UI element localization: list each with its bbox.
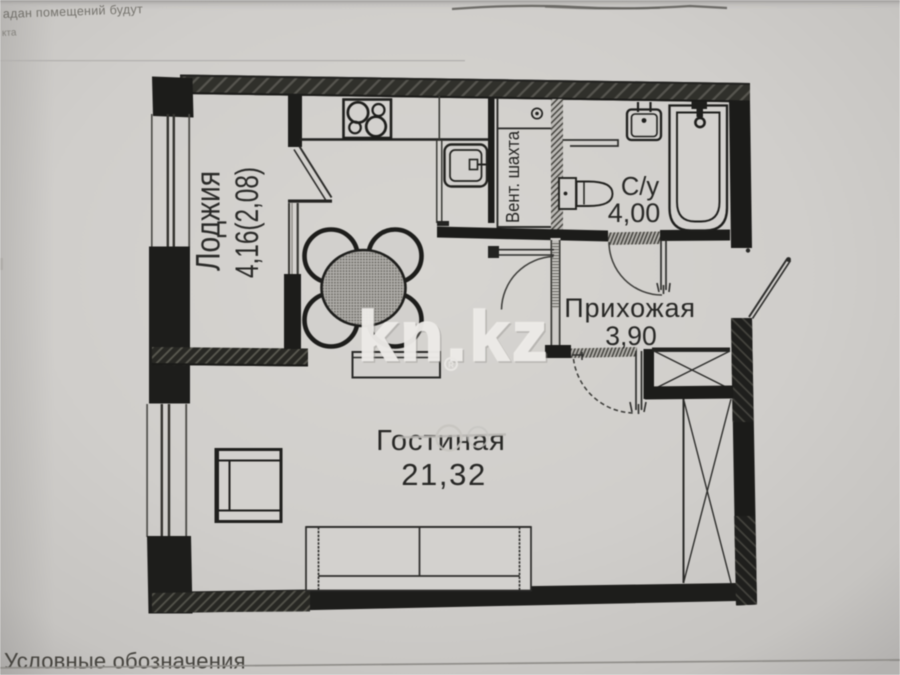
svg-text:кта: кта	[2, 27, 17, 39]
svg-text:С/у: С/у	[621, 173, 660, 201]
svg-text:Условные обозначения: Условные обозначения	[4, 649, 246, 674]
svg-text:Вент. шахта: Вент. шахта	[502, 130, 523, 223]
svg-text:21,32: 21,32	[401, 457, 487, 492]
svg-text:Лоджия: Лоджия	[190, 171, 228, 271]
svg-text:R: R	[448, 361, 454, 370]
svg-text:kn.kz: kn.kz	[358, 297, 551, 375]
svg-text:Прихожая: Прихожая	[564, 293, 696, 323]
svg-text:4,00: 4,00	[608, 198, 661, 228]
svg-text:4,16(2,08): 4,16(2,08)	[229, 167, 265, 278]
svg-text:3,90: 3,90	[605, 321, 657, 351]
